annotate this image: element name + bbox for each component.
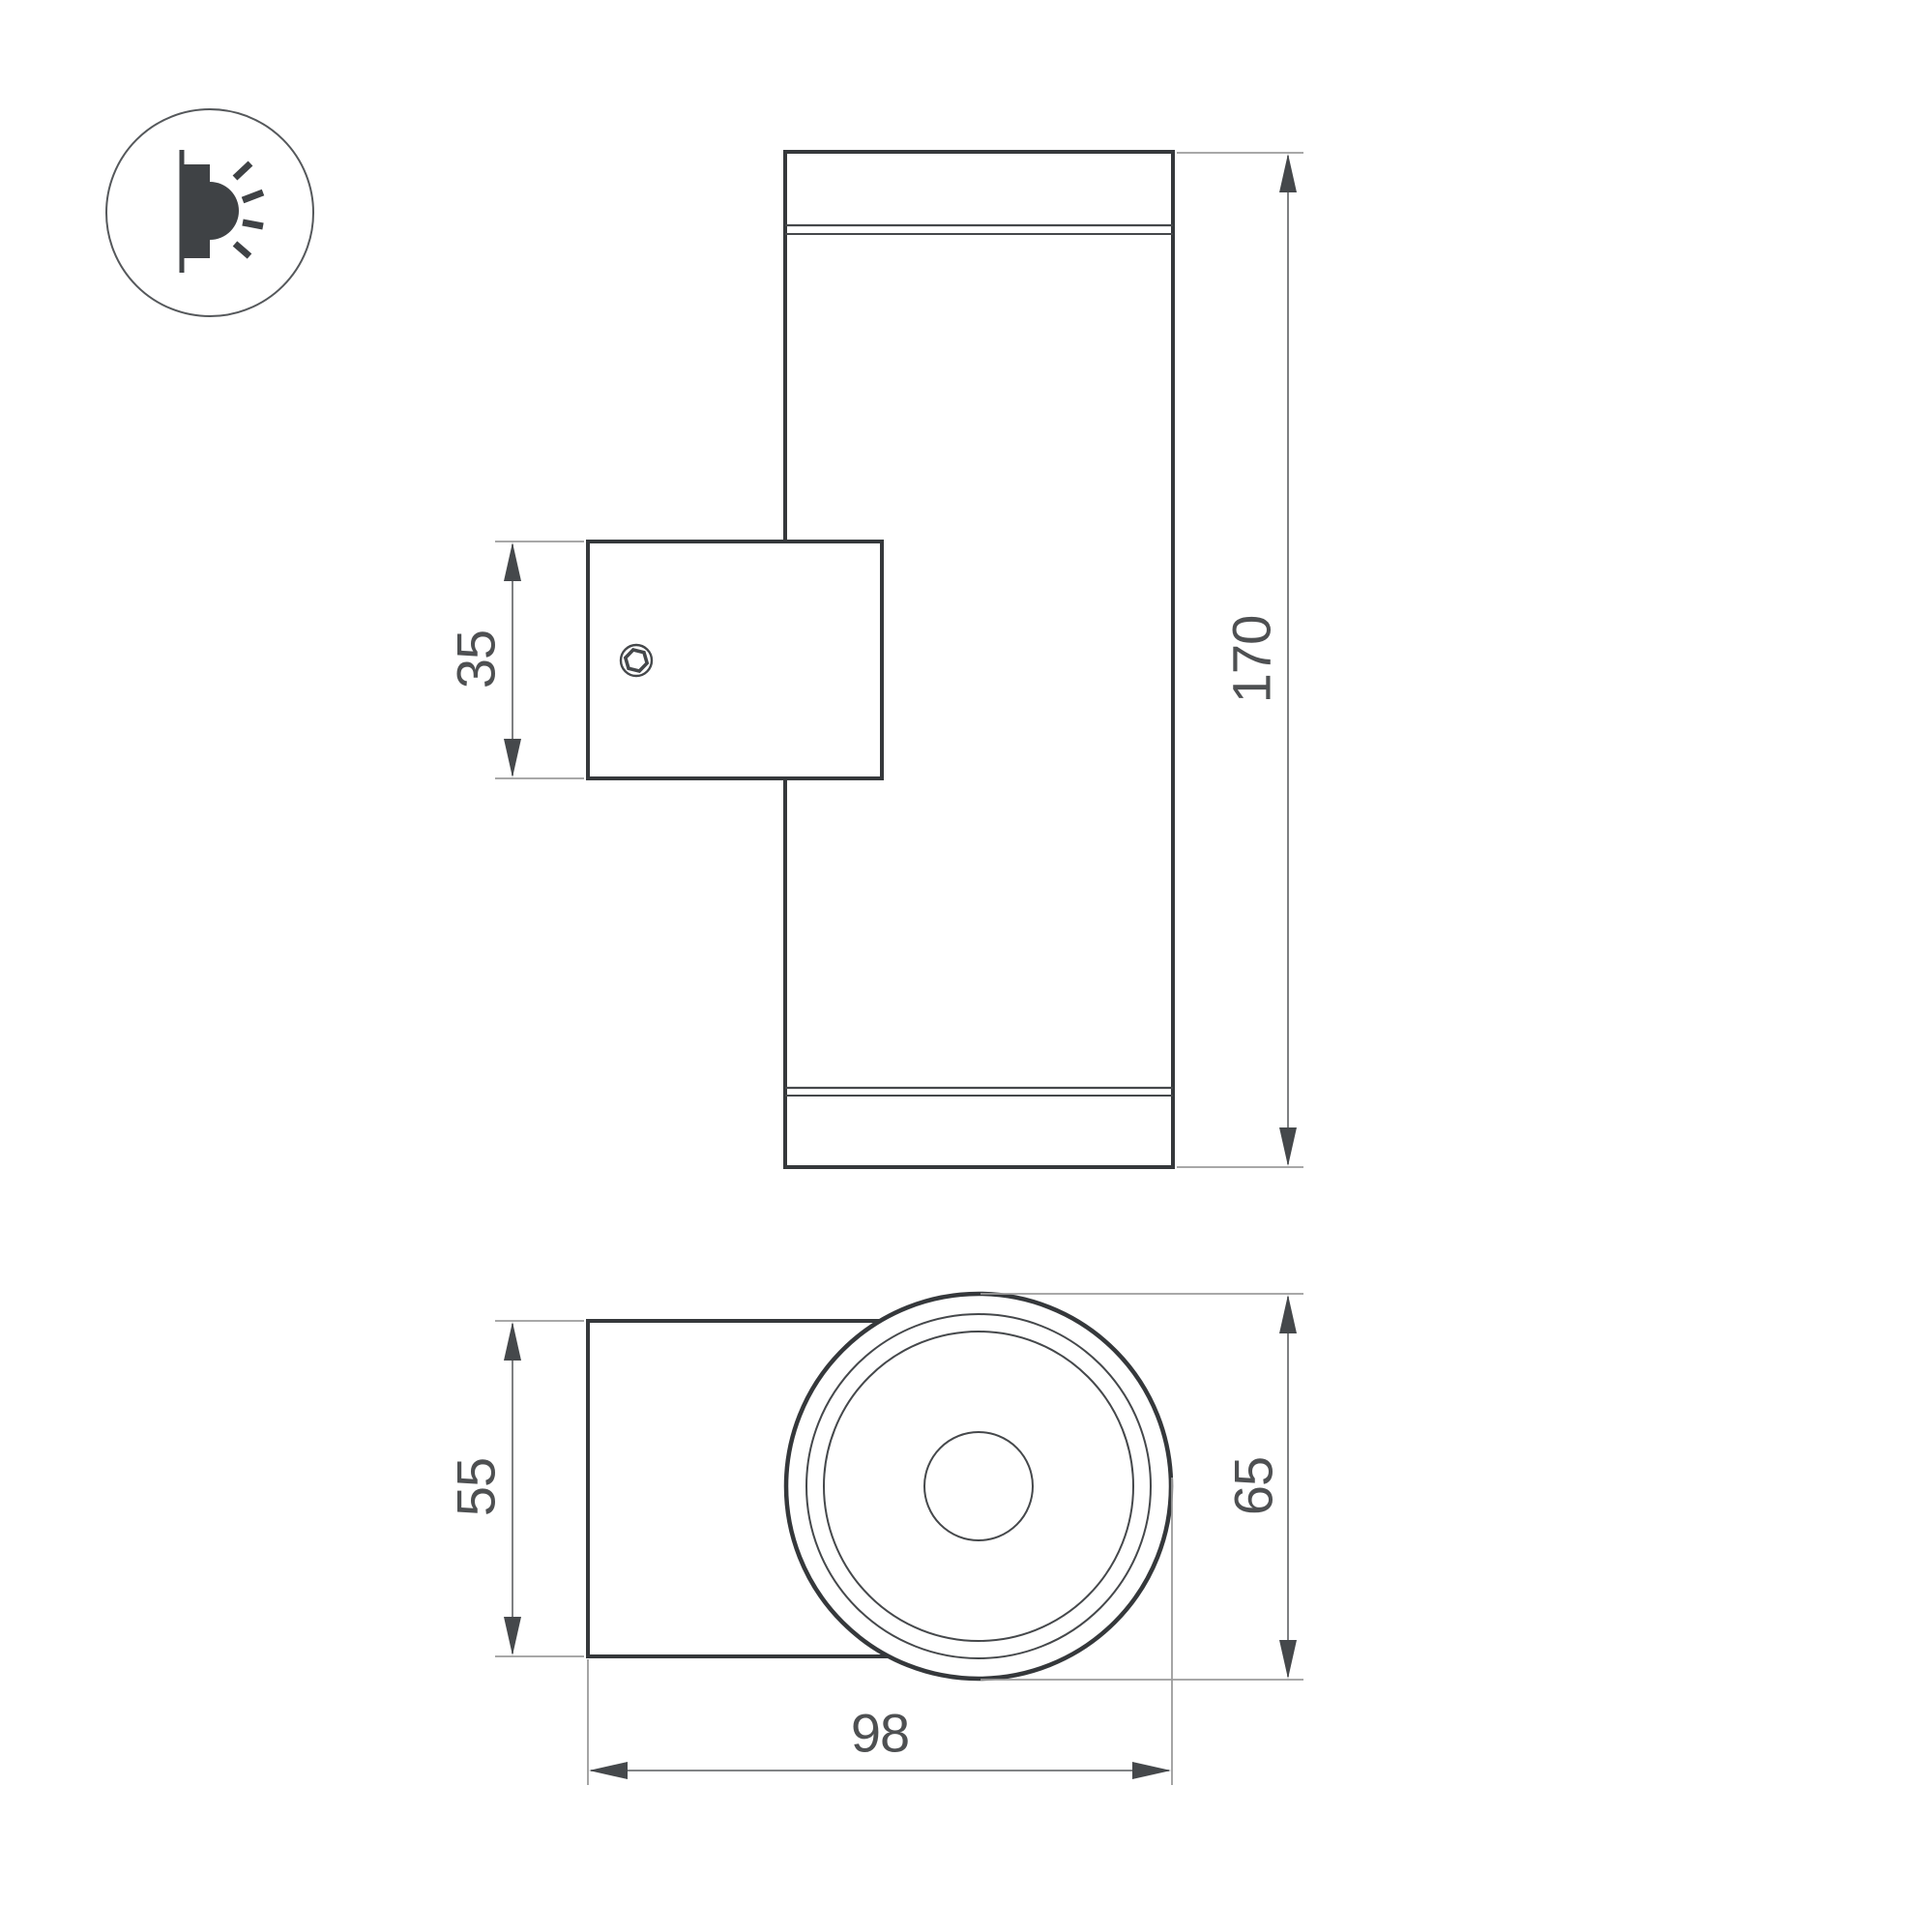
dimension-bracket-height: 35 [446, 542, 584, 778]
arrowhead-down [1279, 1640, 1297, 1679]
dim-label-body-height: 170 [1221, 616, 1282, 703]
arrowhead-up [1279, 154, 1297, 192]
arrowhead-up [504, 542, 521, 581]
face-outer-circle [786, 1294, 1171, 1679]
arrowhead-down [504, 1617, 521, 1655]
dim-label-bracket-height: 35 [446, 630, 507, 688]
dimension-body-width: 55 [446, 1321, 584, 1656]
icon-light-halfdisc [210, 182, 239, 240]
dim-label-depth: 98 [851, 1703, 909, 1764]
wall-light-side-emission-icon [106, 109, 313, 316]
top-view [588, 1294, 1171, 1679]
mounting-bracket [588, 542, 882, 778]
arrowhead-up [1279, 1295, 1297, 1333]
front-view [588, 152, 1173, 1167]
dimension-drawing: 35 170 55 65 [0, 0, 1932, 1932]
dimension-body-height: 170 [1177, 153, 1303, 1167]
drawing-sheet: 35 170 55 65 [0, 0, 1932, 1932]
arrowhead-right [1132, 1762, 1171, 1779]
dim-label-face-diameter: 65 [1223, 1457, 1284, 1515]
dim-label-body-width: 55 [446, 1458, 507, 1516]
arrowhead-down [1279, 1127, 1297, 1166]
icon-light-rays [235, 163, 263, 256]
icon-lamp-body [184, 164, 210, 258]
arrowhead-down [504, 739, 521, 777]
arrowhead-up [504, 1322, 521, 1361]
arrowhead-left [589, 1762, 628, 1779]
